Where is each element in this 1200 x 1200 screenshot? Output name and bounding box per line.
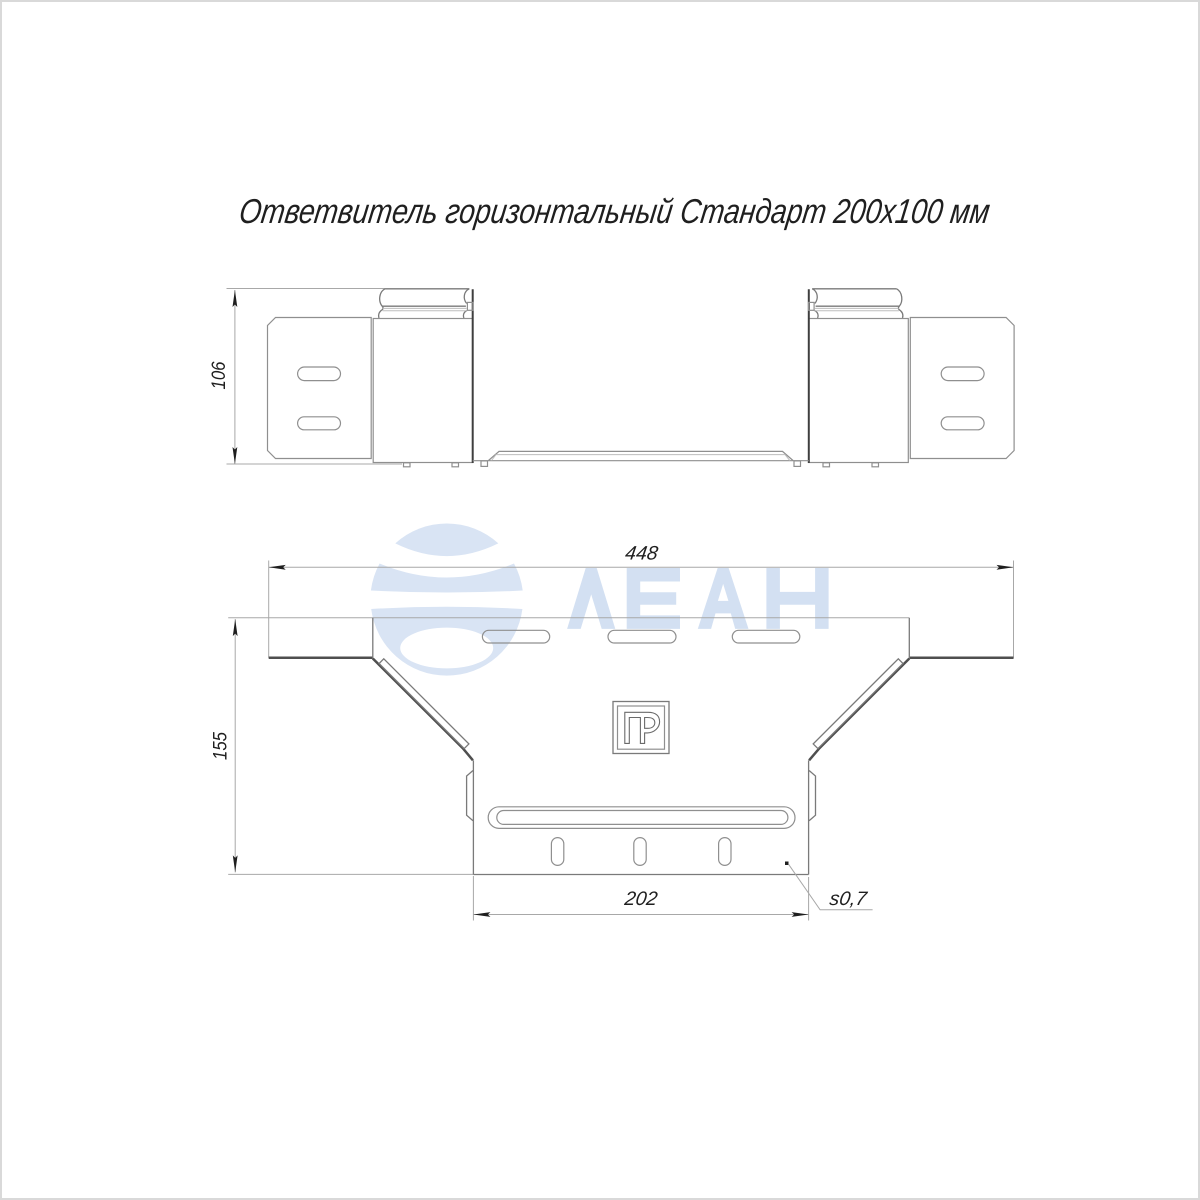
svg-text:106: 106: [208, 361, 230, 389]
svg-text:202: 202: [622, 888, 659, 910]
svg-text:s0,7: s0,7: [828, 888, 869, 910]
svg-text:448: 448: [624, 543, 660, 565]
svg-text:155: 155: [210, 732, 232, 760]
svg-text:Ответвитель горизонтальный Ста: Ответвитель горизонтальный Стандарт 200x…: [237, 193, 993, 231]
